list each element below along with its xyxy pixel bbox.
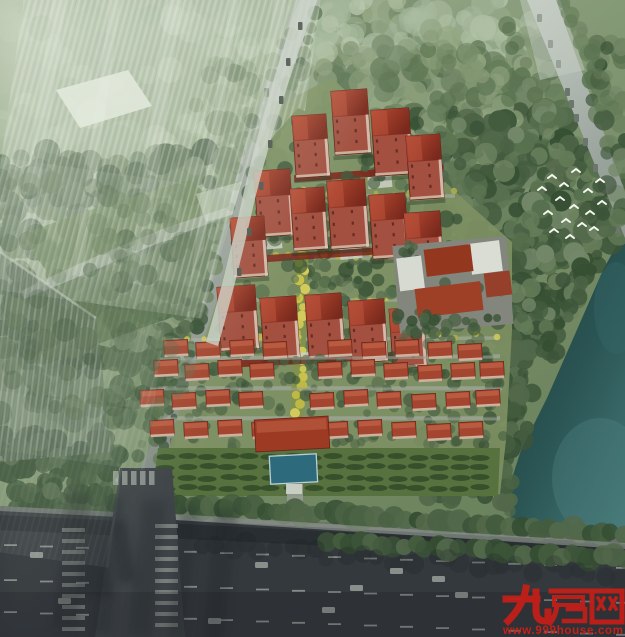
svg-text:www.999house.com: www.999house.com [502, 625, 623, 637]
